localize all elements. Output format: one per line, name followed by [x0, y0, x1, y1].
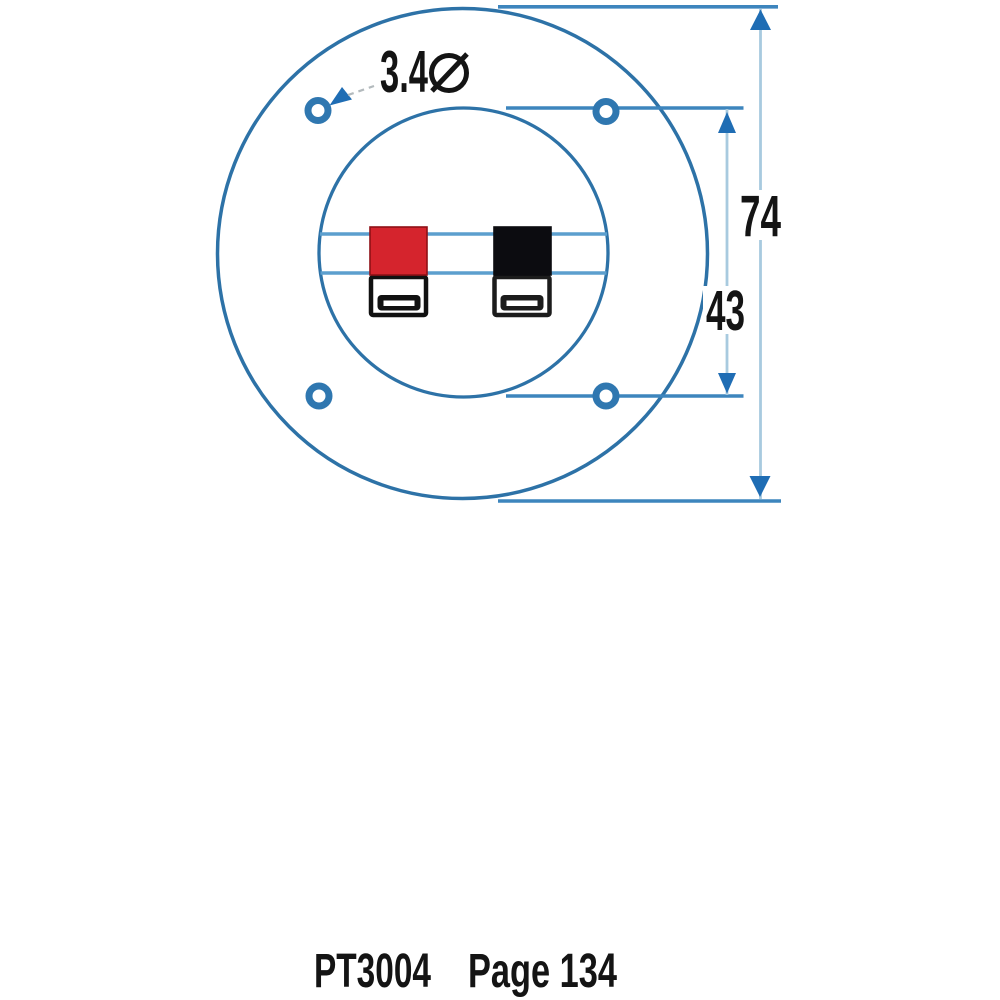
svg-text:43: 43 [706, 279, 745, 343]
svg-text:3.4: 3.4 [380, 39, 428, 105]
svg-text:PT3004: PT3004 [314, 945, 431, 998]
svg-text:74: 74 [740, 184, 781, 249]
svg-text:Page 134: Page 134 [468, 945, 617, 998]
